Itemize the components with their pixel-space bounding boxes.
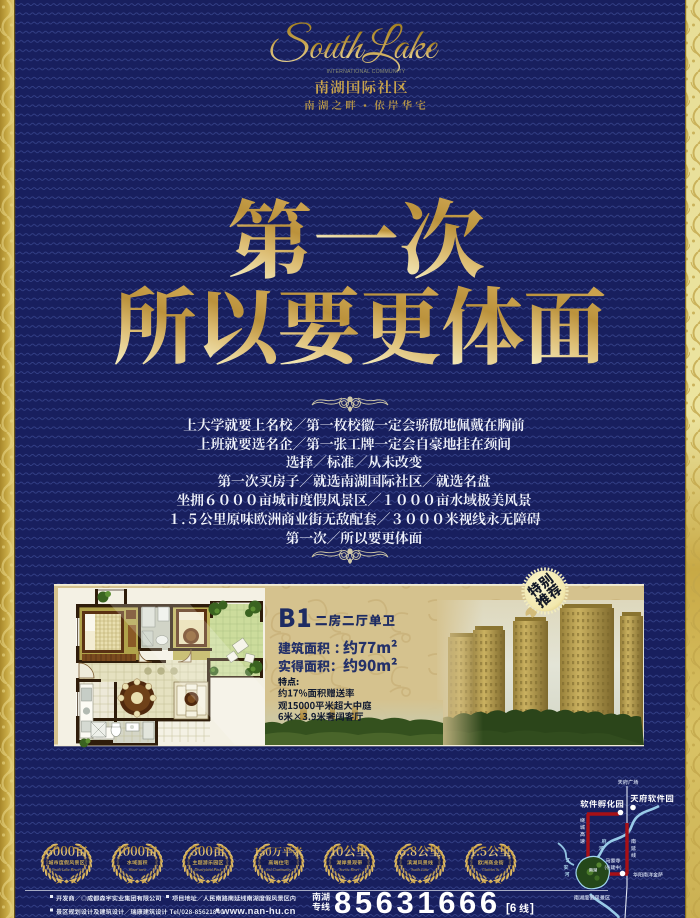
svg-text:[6: [6 — [506, 903, 516, 915]
svg-text:www.nan-hu.cn: www.nan-hu.cn — [221, 906, 296, 917]
svg-text:Charles St: Charles St — [482, 867, 500, 872]
svg-text:Scenic River: Scenic River — [339, 867, 360, 872]
svg-text:INTERNATIONAL COMMUNITY: INTERNATIONAL COMMUNITY — [327, 69, 406, 75]
svg-text:Intl Community: Intl Community — [265, 867, 291, 872]
svg-text:Disneyland Park: Disneyland Park — [193, 867, 221, 872]
svg-text:South Lake: South Lake — [411, 867, 429, 872]
svg-text:]: ] — [530, 903, 534, 915]
svg-text:85631666: 85631666 — [334, 885, 501, 918]
svg-text:Water area: Water area — [128, 867, 146, 872]
svg-text:Smith Lake Resort: Smith Lake Resort — [52, 867, 82, 872]
